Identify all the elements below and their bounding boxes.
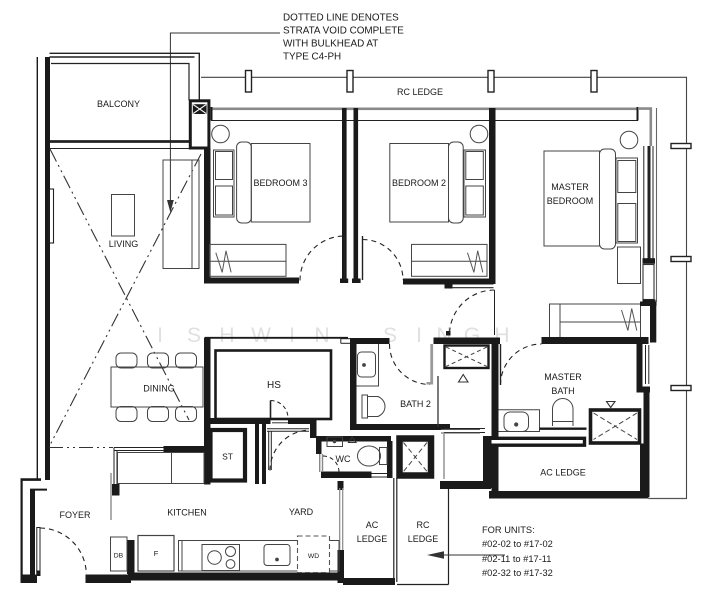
svg-text:MASTER: MASTER xyxy=(544,372,582,382)
svg-text:YARD: YARD xyxy=(289,507,314,517)
svg-text:RC LEDGE: RC LEDGE xyxy=(397,87,443,97)
svg-text:WITH BULKHEAD AT: WITH BULKHEAD AT xyxy=(283,39,378,50)
svg-text:FOR UNITS:: FOR UNITS: xyxy=(482,525,535,535)
svg-text:STRATA VOID COMPLETE: STRATA VOID COMPLETE xyxy=(283,26,404,37)
svg-text:BEDROOM: BEDROOM xyxy=(547,196,594,206)
svg-text:I: I xyxy=(416,324,422,347)
svg-text:I: I xyxy=(157,324,163,347)
svg-text:AC: AC xyxy=(366,520,379,530)
svg-text:LEDGE: LEDGE xyxy=(408,534,439,544)
svg-text:KITCHEN: KITCHEN xyxy=(167,508,207,518)
svg-text:BATH: BATH xyxy=(551,386,574,396)
svg-text:BEDROOM 2: BEDROOM 2 xyxy=(392,178,446,188)
svg-text:LEDGE: LEDGE xyxy=(357,534,388,544)
svg-text:ST: ST xyxy=(222,452,233,462)
svg-text:LIVING: LIVING xyxy=(109,239,139,249)
svg-text:DOTTED LINE DENOTES: DOTTED LINE DENOTES xyxy=(283,13,399,24)
svg-text:H: H xyxy=(219,324,234,347)
svg-text:RC: RC xyxy=(417,520,430,530)
svg-text:TYPE C4-PH: TYPE C4-PH xyxy=(283,52,341,63)
svg-text:W: W xyxy=(251,324,271,347)
svg-text:#02-02 to #17-02: #02-02 to #17-02 xyxy=(482,539,553,549)
svg-text:N: N xyxy=(314,324,329,347)
svg-text:MASTER: MASTER xyxy=(551,182,589,192)
svg-text:BEDROOM 3: BEDROOM 3 xyxy=(253,178,307,188)
svg-text:AC LEDGE: AC LEDGE xyxy=(540,468,586,478)
svg-text:WD: WD xyxy=(308,553,319,560)
svg-text:BATH 2: BATH 2 xyxy=(400,399,431,409)
svg-text:DB: DB xyxy=(114,553,124,560)
svg-text:WC: WC xyxy=(336,454,351,464)
svg-text:HS: HS xyxy=(267,380,281,391)
svg-text:S: S xyxy=(187,324,201,347)
svg-text:F: F xyxy=(154,549,159,558)
svg-text:FOYER: FOYER xyxy=(59,510,91,520)
svg-text:I: I xyxy=(289,324,295,347)
svg-text:DINING: DINING xyxy=(143,384,175,394)
svg-text:BALCONY: BALCONY xyxy=(97,99,140,109)
svg-text:#02-32 to #17-32: #02-32 to #17-32 xyxy=(482,568,553,578)
